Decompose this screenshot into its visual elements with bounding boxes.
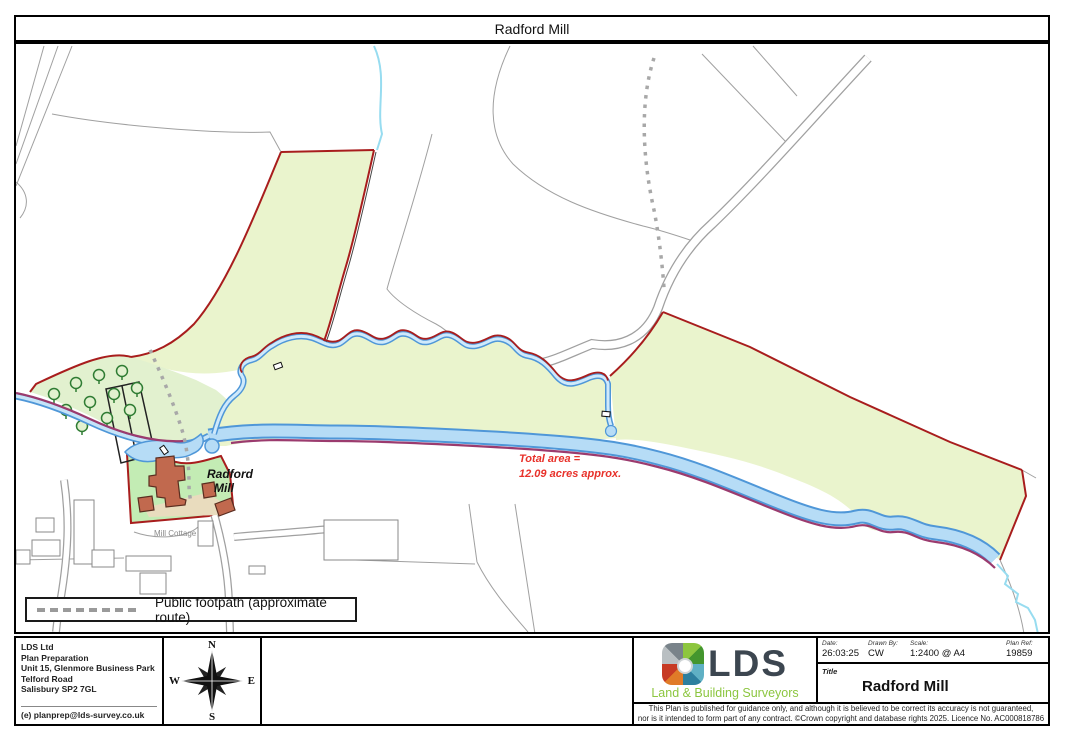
lds-logo: LDS Land & Building Surveyors	[634, 638, 816, 702]
field-line	[469, 504, 477, 562]
road-line	[16, 46, 58, 164]
field-line	[477, 562, 528, 632]
disclaimer-line: nor is it intended to form part of any c…	[638, 714, 1044, 724]
compass-north-label: N	[208, 639, 216, 651]
stream	[997, 564, 1038, 632]
building	[249, 566, 265, 574]
building	[74, 500, 94, 564]
footpath-dash-swatch	[37, 608, 141, 612]
disclaimer: This Plan is published for guidance only…	[634, 702, 1048, 724]
building	[198, 521, 213, 546]
company-name: LDS Ltd	[21, 642, 157, 653]
plan-title-value: Radford Mill	[862, 678, 1044, 695]
scale-label: Scale:	[910, 640, 994, 647]
company-line: Unit 15, Glenmore Business Park	[21, 663, 157, 674]
compass-south-label: S	[209, 711, 215, 723]
lds-top-row: LDS Land & Building Surveyors Date: 26:0…	[634, 638, 1048, 702]
stream	[374, 46, 382, 150]
lds-logo-text: LDS	[708, 646, 788, 682]
building	[126, 556, 171, 571]
plan-page: Radford Mill	[0, 0, 1065, 744]
cottage-label: Mill Cottage	[154, 529, 197, 538]
company-line: Plan Preparation	[21, 653, 157, 664]
plan-meta: Date: 26:03:25 Drawn By: CW Scale: 1:240…	[816, 638, 1048, 702]
plan-ref-value: 19859	[1006, 648, 1048, 659]
field-line	[387, 134, 469, 361]
compass-east-label: E	[248, 675, 255, 687]
plan-title-field: Title Radford Mill	[818, 664, 1048, 702]
field-line	[52, 114, 281, 152]
plan-title-label: Title	[822, 667, 1044, 676]
company-email: (e) planprep@lds-survey.co.uk	[21, 706, 157, 724]
company-line: Telford Road	[21, 674, 157, 685]
date-value: 26:03:25	[822, 648, 864, 659]
map-legend: Public footpath (approximate route)	[25, 597, 357, 622]
lds-logo-icon	[662, 643, 704, 685]
property-label: Radford	[207, 467, 254, 481]
footpath-route	[644, 58, 664, 288]
plan-meta-fields: Date: 26:03:25 Drawn By: CW Scale: 1:240…	[818, 638, 1048, 664]
site-plan-map: Radford Mill Mill Cottage Total area = 1…	[16, 44, 1048, 632]
field-line	[753, 46, 797, 96]
scale-value: 1:2400 @ A4	[910, 648, 994, 659]
title-bar: Radford Mill	[14, 15, 1050, 42]
total-area-note: 12.09 acres approx.	[519, 468, 621, 480]
field-line	[1022, 470, 1036, 478]
date-label: Date:	[822, 640, 864, 647]
legend-label: Public footpath (approximate route)	[155, 595, 355, 625]
compass-box: N S W E	[162, 636, 262, 726]
drawn-by-value: CW	[868, 648, 906, 659]
plan-ref-field: Plan Ref: 19859	[994, 638, 1048, 662]
outbuilding	[138, 496, 154, 512]
road-line	[16, 182, 26, 218]
building	[32, 540, 60, 556]
total-area-note: Total area =	[519, 453, 581, 465]
channel-pool	[606, 426, 617, 437]
compass-west-label: W	[169, 675, 180, 687]
company-info-box: LDS Ltd Plan Preparation Unit 15, Glenmo…	[14, 636, 164, 726]
company-line: Salisbury SP2 7GL	[21, 684, 157, 695]
property-label: Mill	[214, 481, 235, 495]
spare-box	[260, 636, 634, 726]
round-pond	[205, 439, 219, 453]
scale-field: Scale: 1:2400 @ A4	[906, 638, 994, 662]
field-line	[702, 54, 786, 142]
title-block-footer: LDS Ltd Plan Preparation Unit 15, Glenmo…	[14, 636, 1050, 726]
culvert	[602, 411, 610, 417]
lds-title-block: LDS Land & Building Surveyors Date: 26:0…	[632, 636, 1050, 726]
plan-ref-label: Plan Ref:	[1006, 640, 1048, 647]
field-line	[515, 504, 535, 632]
drawn-by-field: Drawn By: CW	[864, 638, 906, 662]
map-frame: Radford Mill Mill Cottage Total area = 1…	[14, 42, 1050, 634]
building	[92, 550, 114, 567]
roads-and-field-lines	[16, 46, 1036, 632]
building	[16, 550, 30, 564]
page-title: Radford Mill	[495, 21, 570, 37]
date-field: Date: 26:03:25	[818, 638, 864, 662]
disclaimer-line: This Plan is published for guidance only…	[649, 704, 1034, 714]
building	[36, 518, 54, 532]
building	[324, 520, 398, 560]
drawn-by-label: Drawn By:	[868, 640, 906, 647]
building	[140, 573, 166, 594]
lds-tagline: Land & Building Surveyors	[651, 686, 798, 700]
parcel-upper-field	[131, 150, 374, 373]
field-line	[493, 46, 696, 242]
